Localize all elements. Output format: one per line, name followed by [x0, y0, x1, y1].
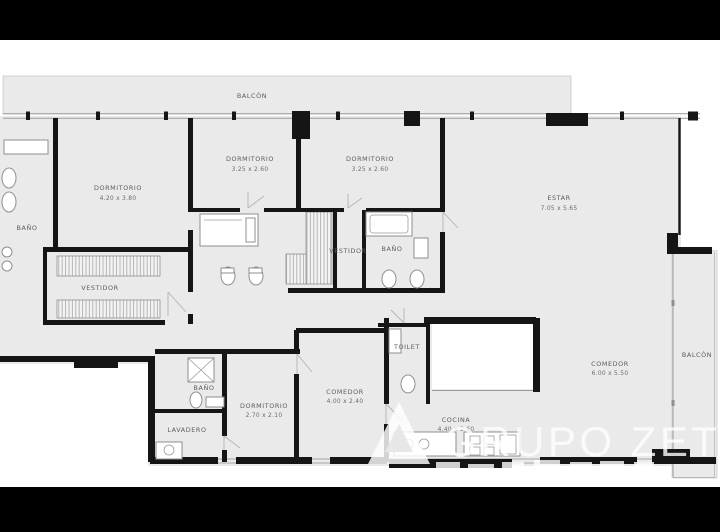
letterbox-top-bar [0, 0, 720, 40]
island-void [432, 322, 533, 389]
room-label-comedor-right: COMEDOR [591, 360, 629, 368]
room-label-vestidor-main: VESTIDOR [81, 284, 118, 292]
pillow-icon [246, 218, 255, 242]
balcony-top-area [3, 76, 571, 114]
letterbox-bottom-bar [0, 487, 720, 532]
room-label-lavadero: LAVADERO [167, 426, 206, 434]
bidet-icon [410, 270, 424, 288]
shelf-icon [4, 140, 48, 154]
room-label-comedor-center: COMEDOR [326, 388, 364, 396]
sink-icon [2, 192, 16, 212]
room-label-dormitorio-4: DORMITORIO [240, 402, 288, 410]
room-dims-dormitorio-1: 4.20 x 3.80 [100, 196, 137, 202]
room-label-dormitorio-3: DORMITORIO [346, 155, 394, 163]
room-dims-dormitorio-3: 3.25 x 2.60 [352, 167, 389, 173]
room-label-balcon-top: BALCÓN [237, 91, 267, 100]
room-label-toilet: TOILET [393, 343, 420, 351]
room-dims-estar: 7.05 x 5.65 [541, 206, 578, 212]
watermark-text: GRUPO ZETA [444, 418, 720, 465]
toilet-icon [382, 270, 396, 288]
sink-icon [2, 168, 16, 188]
sink-icon [206, 397, 224, 407]
toilet-icon [401, 375, 415, 393]
room-label-balcon-right: BALCÓN [682, 350, 712, 359]
room-label-dormitorio-2: DORMITORIO [226, 155, 274, 163]
room-label-bano-2: BAÑO [382, 244, 403, 253]
floor-plan-page: BALCÓN BAÑO DORMITORIO 4.20 x 3.80 DORMI… [0, 0, 720, 532]
room-dims-dormitorio-2: 3.25 x 2.60 [232, 167, 269, 173]
room-dims-comedor-center: 4.00 x 2.40 [327, 399, 364, 405]
room-label-dormitorio-1: DORMITORIO [94, 184, 142, 192]
toilet-icon [190, 392, 202, 408]
toilet-icon [2, 247, 12, 257]
washer-icon [156, 442, 182, 459]
room-label-vestidor-2: VESTIDOR [329, 247, 366, 255]
sink-icon [414, 238, 428, 258]
room-label-bano-3: BAÑO [194, 383, 215, 392]
room-dims-dormitorio-4: 2.70 x 2.10 [246, 413, 283, 419]
room-dims-comedor-right: 6.00 x 5.50 [592, 371, 629, 377]
room-label-estar: ESTAR [547, 194, 570, 202]
room-label-bano-left: BAÑO [17, 223, 38, 232]
exterior-cutout [0, 364, 148, 466]
floor-plan-canvas: BALCÓN BAÑO DORMITORIO 4.20 x 3.80 DORMI… [0, 0, 720, 532]
bathtub-icon [366, 212, 412, 236]
exterior-right [681, 116, 720, 250]
bidet-icon [2, 261, 12, 271]
